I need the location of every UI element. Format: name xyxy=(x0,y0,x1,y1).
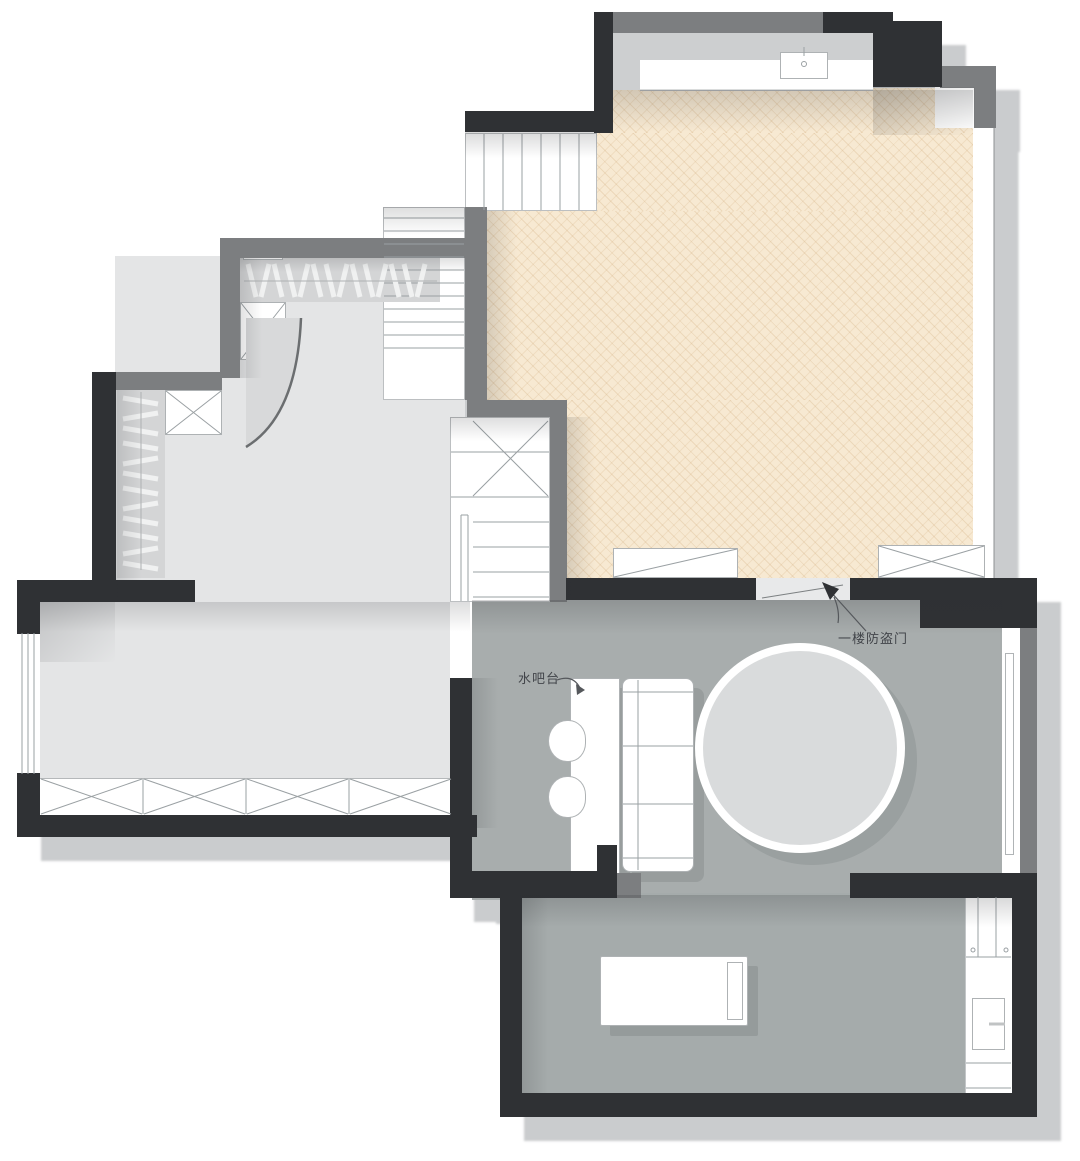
low-cabinet xyxy=(613,548,738,578)
utility-strip xyxy=(965,895,1012,1093)
staircase-long-flight xyxy=(383,207,465,400)
staircase-upper-flight xyxy=(465,133,597,211)
wall-gray xyxy=(974,88,996,128)
wall-black xyxy=(17,815,477,837)
wall-gray xyxy=(467,400,567,417)
wall-black xyxy=(500,871,522,1117)
wood-floor-living-room xyxy=(597,133,975,211)
wall-black xyxy=(450,871,617,898)
storage-x-cabinet-row xyxy=(40,778,452,815)
wood-floor-living-room xyxy=(487,211,975,400)
wall-black xyxy=(597,845,617,873)
wood-floor-living-room xyxy=(613,88,975,133)
wall-black xyxy=(850,578,1037,600)
kitchen-counter-back xyxy=(640,33,873,60)
wall-black xyxy=(850,873,1037,898)
wardrobe-hanging-top xyxy=(240,258,440,302)
staircase-lower-flight xyxy=(450,417,550,602)
wall-gray xyxy=(112,372,222,390)
kitchen-counter xyxy=(640,60,873,91)
storage-x-cabinet xyxy=(878,545,985,578)
kitchen-counter-back xyxy=(613,33,643,90)
plan-layer xyxy=(0,0,1080,1161)
wall-black xyxy=(465,111,613,132)
wall-black xyxy=(1012,896,1037,1117)
sink xyxy=(780,52,828,79)
wall-black xyxy=(873,21,942,87)
wall-gray xyxy=(940,66,996,88)
wall-black xyxy=(566,578,756,600)
wall-black xyxy=(450,823,472,875)
wall-gray xyxy=(220,238,240,378)
single-bed xyxy=(600,956,748,1026)
wall-black xyxy=(17,600,40,634)
wall-black xyxy=(450,678,472,828)
wall-stub xyxy=(613,873,641,898)
storage-x-cabinet xyxy=(240,302,286,360)
floor-bottom-room xyxy=(520,893,1012,1095)
wall-black xyxy=(500,1093,1037,1117)
label-security-door: 一楼防盗门 xyxy=(838,628,908,647)
round-rug xyxy=(695,643,905,853)
wall-gray xyxy=(1020,627,1037,878)
bar-stool xyxy=(548,776,586,818)
wall-gray xyxy=(220,238,465,258)
wall-gray xyxy=(465,207,487,400)
storage-x-cabinet xyxy=(165,390,222,435)
pillow xyxy=(727,962,743,1020)
wall-black xyxy=(92,372,116,602)
label-water-bar: 水吧台 xyxy=(518,668,560,687)
window-sill-strip xyxy=(973,128,994,578)
wall-gray xyxy=(550,417,567,602)
bar-stool xyxy=(548,720,586,762)
door-threshold xyxy=(756,578,850,600)
wall-black xyxy=(920,598,1037,628)
wall-black xyxy=(17,580,195,602)
sofa xyxy=(622,678,694,872)
window xyxy=(17,632,40,775)
stair-landing-patch xyxy=(450,602,472,678)
wardrobe-hanging-left xyxy=(117,388,165,578)
floor-plan: 水吧台 一楼防盗门 xyxy=(0,0,1080,1161)
sliding-window xyxy=(1005,653,1014,855)
wall-gray xyxy=(613,12,823,33)
shower-tray xyxy=(972,998,1005,1050)
